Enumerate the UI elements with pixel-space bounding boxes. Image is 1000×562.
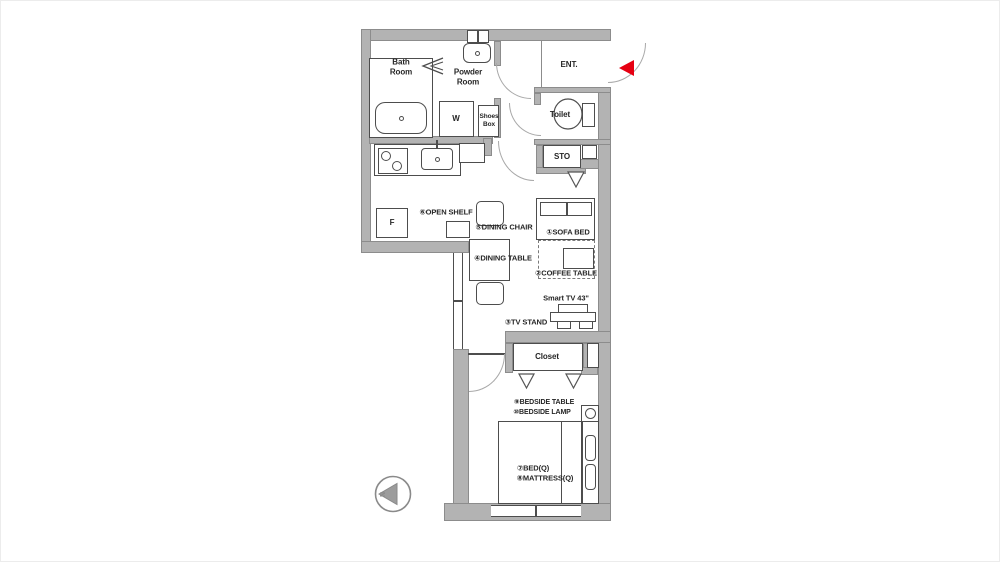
label-dining-chair: ⑤DINING CHAIR	[475, 223, 532, 232]
floor-plan: N Bath Room Powder Room W Shoes Box Toil…	[0, 0, 1000, 562]
room-label-bath: Bath Room	[390, 57, 412, 76]
label-bedside-lamp: ⑩BEDSIDE LAMP	[513, 409, 571, 417]
powder-door-arc	[496, 63, 531, 99]
closet-shaft	[587, 343, 599, 368]
closet-door-icon-2	[565, 373, 582, 389]
room-label-washer: W	[452, 114, 459, 124]
room-label-fridge: F	[390, 218, 395, 228]
stove-burner-1	[381, 151, 391, 161]
room-label-powder: Powder Room	[454, 67, 482, 86]
dining-chair-bottom	[476, 282, 504, 305]
label-tv-stand: ③TV STAND	[505, 318, 547, 327]
wall-closet-left	[505, 343, 513, 373]
bedroom-door-arc	[469, 354, 505, 392]
open-shelf	[446, 221, 470, 238]
room-label-entrance: ENT.	[561, 60, 578, 70]
toilet-door-arc	[509, 103, 541, 136]
wall-left-lower	[453, 349, 469, 521]
compass-north-label: N	[380, 492, 387, 497]
label-bed: ⑦BED(Q)	[517, 464, 549, 473]
coffee-table	[563, 248, 594, 269]
label-dining-table: ④DINING TABLE	[474, 254, 532, 263]
room-label-closet: Closet	[535, 352, 559, 362]
room-label-toilet: Toilet	[550, 110, 570, 120]
pipe-shaft	[582, 145, 597, 159]
washbasin-faucet	[477, 31, 479, 42]
mattress-line	[561, 421, 562, 504]
room-label-shoes-box: Shoes Box	[479, 113, 498, 129]
pillow-2	[585, 464, 596, 490]
sink-faucet	[436, 140, 438, 149]
compass-icon: N	[373, 474, 413, 514]
wall-shaft-bottom	[580, 159, 599, 169]
tv-stand-foot-1	[557, 321, 571, 329]
bedside-lamp	[585, 408, 596, 419]
label-coffee-table: ②COFFEE TABLE	[535, 269, 597, 278]
sofa-cushion-2	[567, 202, 592, 216]
wall-right	[598, 87, 611, 521]
storage-door-icon	[567, 171, 585, 188]
room-label-storage: STO	[554, 152, 570, 162]
sink-drain	[435, 157, 440, 162]
entrance-step-line	[541, 41, 542, 87]
counter-side-box	[459, 143, 485, 163]
pillow-1	[585, 435, 596, 461]
label-sofa-bed: ①SOFA BED	[546, 228, 590, 237]
closet-door-icon-1	[518, 373, 535, 389]
wall-bedroom-divider	[505, 331, 611, 343]
bed-head-strip	[582, 421, 599, 504]
label-smart-tv: Smart TV 43"	[543, 294, 589, 303]
washbasin-drain	[475, 51, 480, 56]
wall-ent-bottom	[534, 87, 611, 93]
label-mattress: ⑧MATTRESS(Q)	[517, 474, 574, 483]
toilet-tank	[582, 103, 595, 127]
tv-stand-foot-2	[579, 321, 593, 329]
wall-notch	[361, 241, 469, 253]
label-bedside-table: ⑨BEDSIDE TABLE	[514, 399, 574, 407]
wall-shaft2-bottom	[581, 367, 598, 375]
stove-burner-2	[392, 161, 402, 171]
sofa-cushion-1	[540, 202, 567, 216]
window-side-tick	[453, 300, 463, 302]
bed-frame	[498, 421, 582, 504]
living-door-arc	[498, 141, 534, 181]
bathtub-drain	[399, 116, 404, 121]
entrance-arrow-icon	[619, 60, 634, 76]
window-bottom-tick	[535, 505, 537, 517]
label-open-shelf: ⑥OPEN SHELF	[419, 208, 472, 217]
bath-folding-door-icon	[419, 56, 445, 76]
